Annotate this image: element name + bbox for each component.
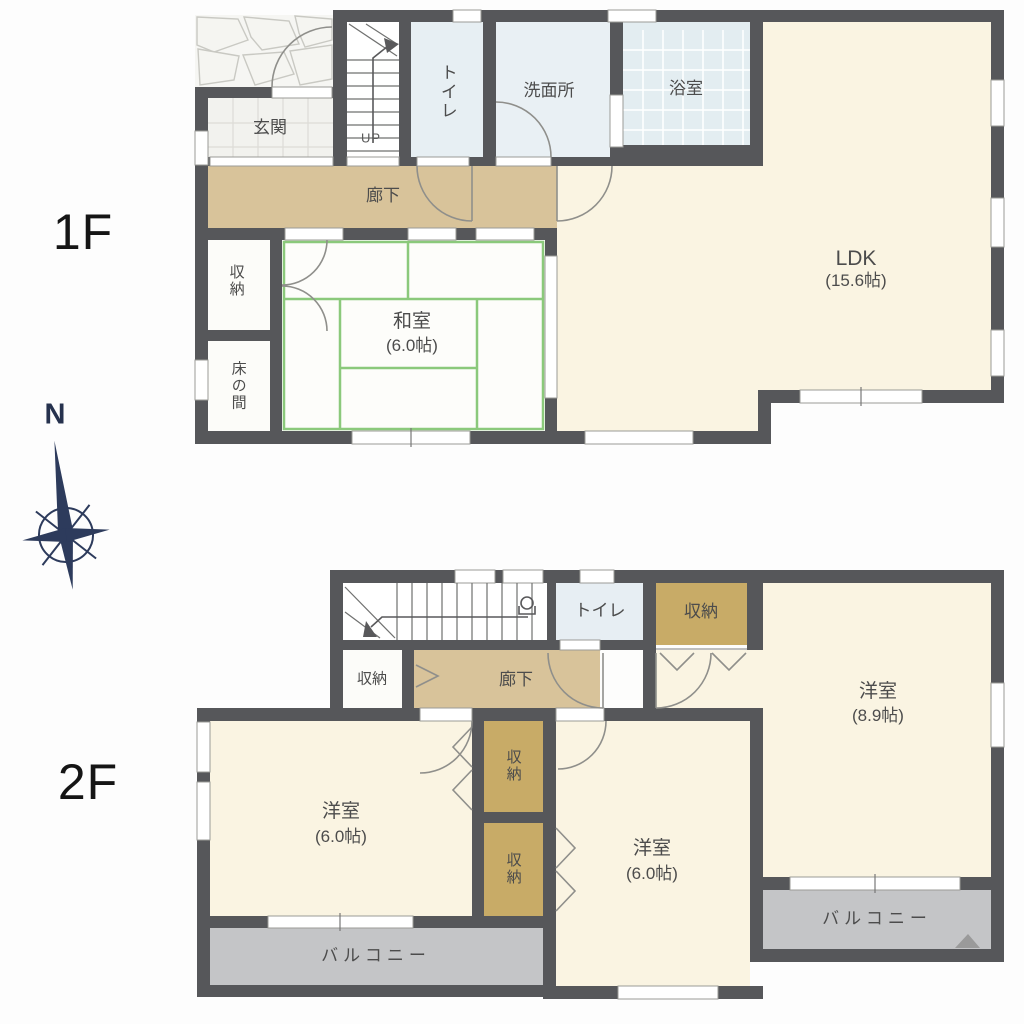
room-label-balcony-east: バルコニー [822,909,932,929]
room-label-balcony-west: バルコニー [321,946,431,966]
room-label-toilet-2f: トイレ [575,601,626,621]
compass-rose-icon [11,435,117,595]
entrance-stone-path [195,15,333,87]
room-label-ldk: LDK [836,247,877,271]
room-label-genkan: 玄関 [253,118,287,138]
stairs-up-label: UP [361,131,381,146]
room-size-washitsu: (6.0帖) [386,336,438,356]
room-size-ldk: (15.6帖) [825,271,886,291]
room-label-storage-left-2f: 収納 [357,670,387,687]
room-label-closet-upper: 収納 [504,749,521,783]
room-label-hallway-2f: 廊下 [499,670,533,690]
room-label-hallway-1f: 廊下 [366,186,400,206]
room-label-west-room: 洋室 [322,801,360,823]
room-size-east-room: (8.9帖) [852,706,904,726]
room-label-washitsu: 和室 [393,311,431,333]
room-label-middle-room: 洋室 [633,838,671,860]
compass-north-label: N [45,399,66,432]
room-label-bathroom: 浴室 [669,79,703,99]
room-label-toilet-1f: トイレ [437,64,457,121]
room-label-closet-lower: 収納 [504,852,521,886]
floor2-label: 2F [58,753,118,811]
room-label-east-room: 洋室 [859,681,897,703]
room-label-washroom: 洗面所 [524,81,575,101]
floor1-label: 1F [53,203,113,261]
room-size-west-room: (6.0帖) [315,827,367,847]
room-label-storage-top-2f: 収納 [684,602,718,622]
floor-plan-image: 1F 2F N 玄関 トイレ 洗面所 浴室 LDK (15.6帖) 廊下 収納 … [0,0,1024,1024]
room-size-middle-room: (6.0帖) [626,864,678,884]
room-label-tokonoma: 床の間 [229,361,246,412]
room-label-storage-1f: 収納 [227,264,244,298]
